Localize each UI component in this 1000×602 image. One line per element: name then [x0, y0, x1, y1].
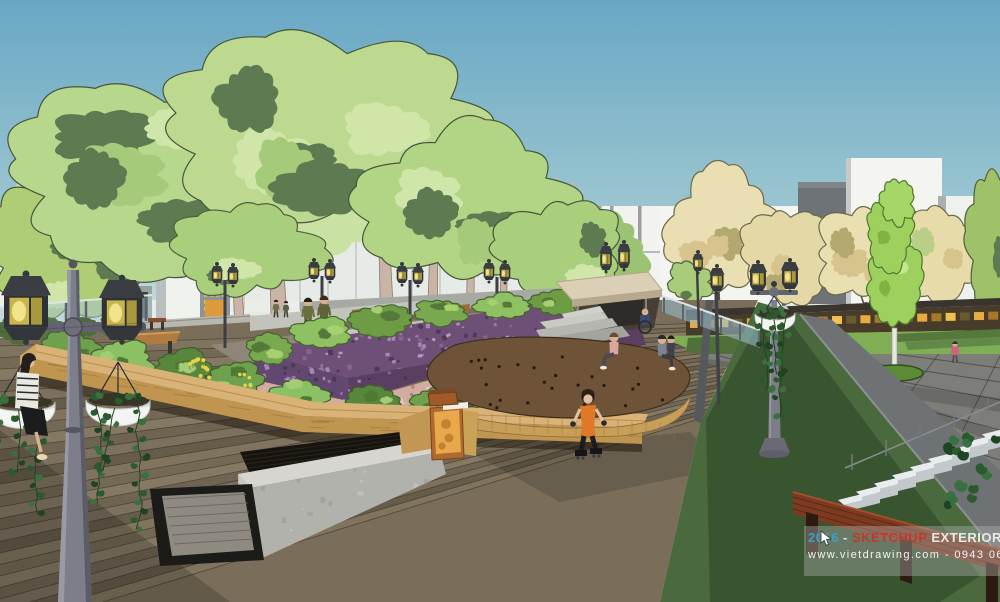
watermark-separator: -: [839, 530, 852, 545]
watermark-subtitle: EXTERIOR VOL.16: [927, 530, 1000, 545]
scene-canvas: [0, 0, 1000, 602]
tree-grate: [150, 484, 264, 566]
sketchup-render: 2016 - SKETCHUP EXTERIOR VOL.16 www.viet…: [0, 0, 1000, 602]
cursor-icon: [820, 530, 834, 548]
watermark-website: www.vietdrawing.com - 0943 06 06 08: [808, 548, 992, 564]
watermark-title: 2016 - SKETCHUP EXTERIOR VOL.16: [808, 529, 992, 548]
watermark-brand: SKETCHUP: [852, 530, 927, 545]
